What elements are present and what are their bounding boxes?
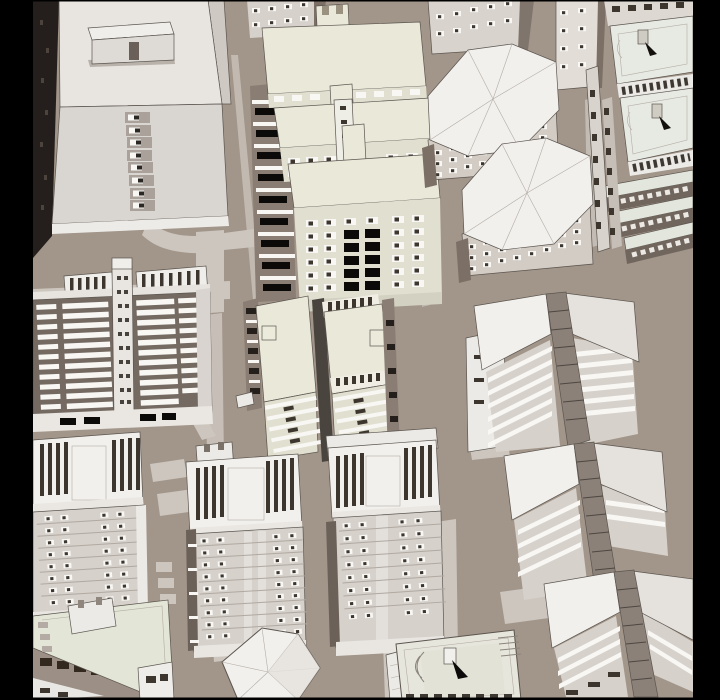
blank-strip-1 — [244, 532, 252, 648]
sidewalk-patch-4 — [156, 562, 172, 572]
building-slab-tower-plain — [33, 0, 231, 258]
building-point-tower-1 — [33, 432, 148, 626]
shaft-bulkhead — [112, 258, 132, 269]
roof-bulkhead-3 — [342, 124, 366, 164]
building-butterfly-roof-block-3 — [544, 570, 693, 697]
end-wall — [196, 288, 212, 412]
upper-roof — [262, 22, 426, 94]
statue — [444, 648, 456, 664]
building-point-tower-2 — [186, 442, 308, 658]
balcony-edge-column — [186, 529, 198, 651]
letterbox-top — [0, 0, 720, 2]
building-butterfly-roof-block-1 — [466, 292, 639, 452]
building-terraced-cream-complex — [250, 4, 442, 312]
screenshot — [0, 0, 720, 700]
edge-strip — [136, 505, 148, 613]
city-model-render — [0, 0, 720, 700]
letterbox-left — [0, 0, 33, 700]
left-tower-roof — [256, 296, 316, 402]
roof-statue-1 — [638, 30, 648, 44]
sidewalk-patch-5 — [158, 578, 174, 588]
building-point-tower-3 — [326, 428, 447, 656]
left-roof-bulkhead — [262, 326, 276, 340]
elevator-shaft — [112, 266, 134, 418]
letterbox-right — [693, 0, 720, 700]
roof-statue-2 — [652, 104, 662, 118]
penthouse-door — [129, 42, 139, 60]
background-tower-facade-center — [428, 0, 534, 54]
